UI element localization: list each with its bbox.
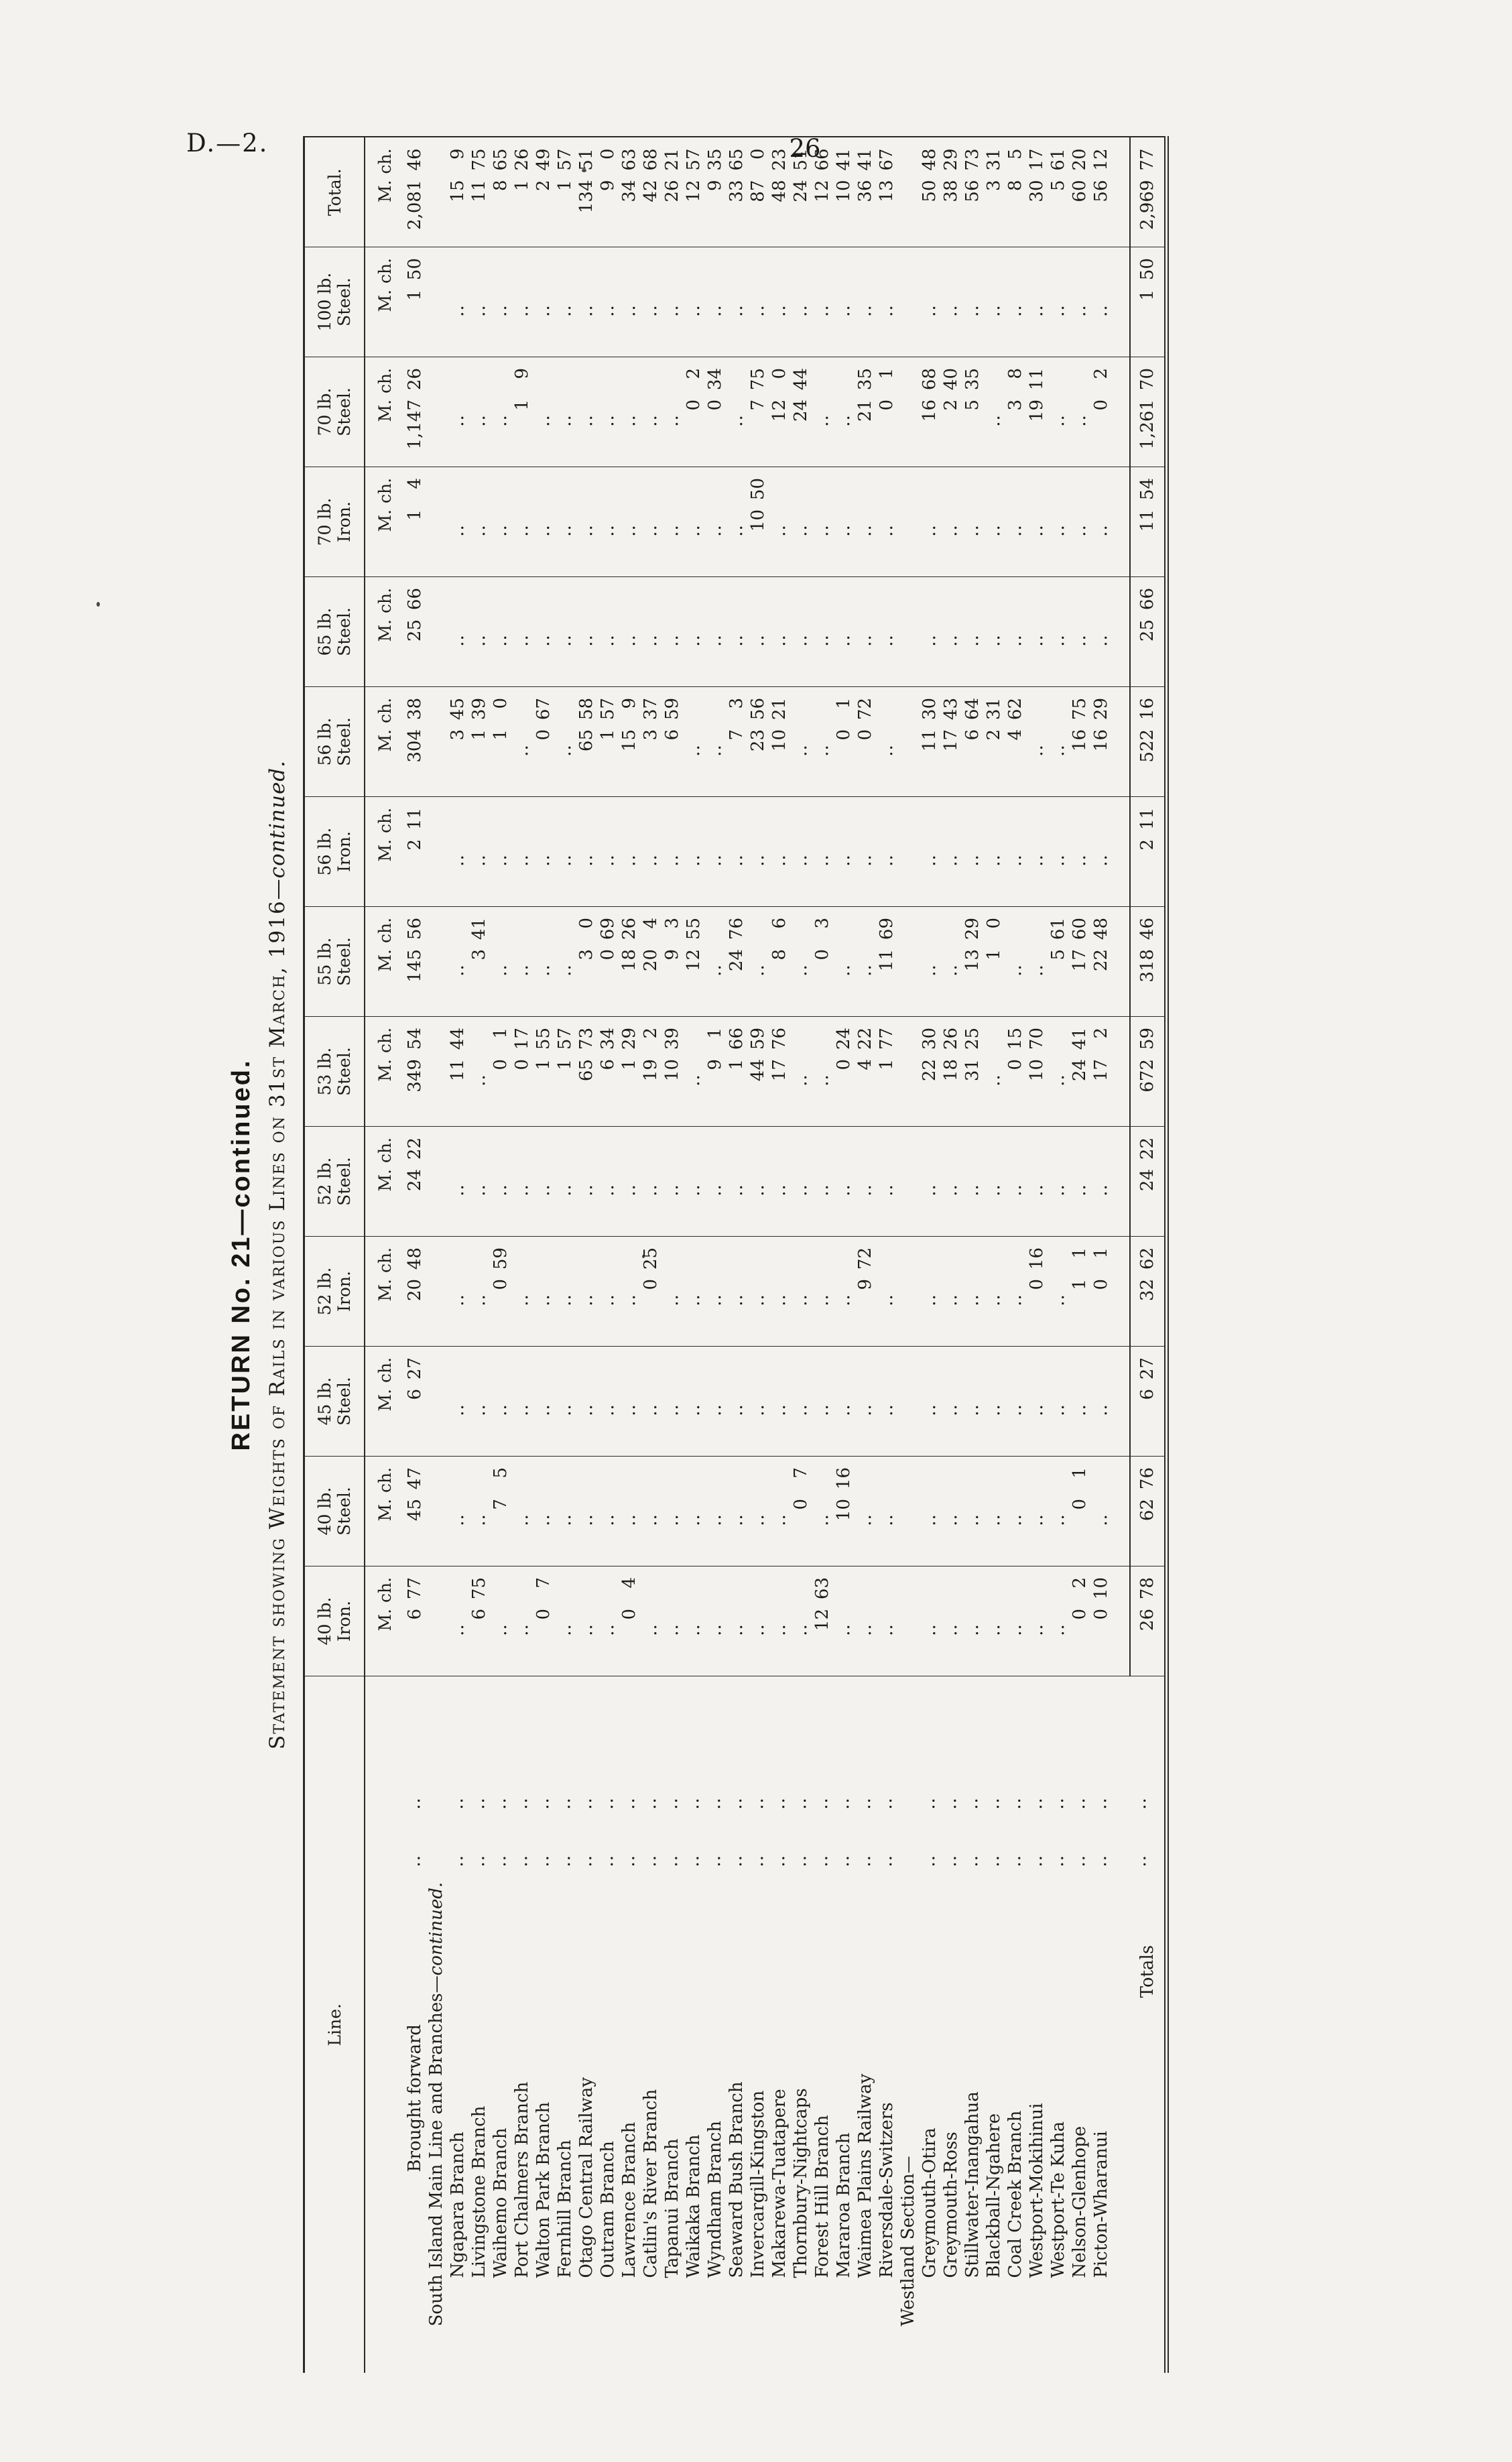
- empty-cell: ..: [490, 907, 511, 1017]
- table-row: Forest Hill Branch.. ..1263..........03.…: [812, 137, 833, 2374]
- value-cell: 4268: [640, 137, 661, 247]
- value-cell: 1776: [769, 1017, 790, 1127]
- empty-cell: ..: [1048, 467, 1069, 577]
- line-name-cell: Fernhill Branch.. ..: [554, 1676, 576, 2374]
- value-cell: 1,26170: [1130, 357, 1167, 467]
- empty-cell: ..: [790, 467, 812, 577]
- blank-cell: [1112, 687, 1130, 797]
- empty-cell: ..: [490, 357, 511, 467]
- empty-cell: ..: [1026, 1127, 1048, 1237]
- value-cell: 2248: [1090, 907, 1112, 1017]
- empty-cell: ..: [704, 1127, 726, 1237]
- line-name-cell: Westport-Te Kuha.. ..: [1048, 1676, 1069, 2374]
- empty-cell: ..: [511, 1237, 533, 1347]
- empty-cell: ..: [1026, 687, 1048, 797]
- blank-cell: [426, 1127, 447, 1237]
- value-cell: 1130: [919, 687, 940, 797]
- empty-cell: ..: [661, 797, 683, 907]
- line-name-cell: Wyndham Branch.. ..: [704, 1676, 726, 2374]
- empty-cell: ..: [940, 1237, 962, 1347]
- empty-cell: ..: [940, 1347, 962, 1457]
- value-cell: 120: [769, 357, 790, 467]
- empty-cell: ..: [554, 797, 576, 907]
- blank-cell: [426, 1457, 447, 1566]
- empty-cell: ..: [790, 907, 812, 1017]
- table-row: Makarewa-Tuatapere.. ............177686.…: [769, 137, 790, 2374]
- empty-cell: ..: [597, 357, 619, 467]
- value-cell: 010: [1090, 1566, 1112, 1676]
- header-labels-row: Line. 40 lb.Iron.40 lb.Steel.45 lb.Steel…: [304, 137, 365, 2374]
- empty-cell: ..: [597, 1566, 619, 1676]
- empty-cell: ..: [683, 687, 704, 797]
- line-name-cell: Walton Park Branch.. ..: [533, 1676, 554, 2374]
- empty-cell: ..: [511, 1127, 533, 1237]
- empty-cell: ..: [983, 1017, 1005, 1127]
- value-cell: 2230: [919, 1017, 940, 1127]
- blank-cell: [897, 1237, 919, 1347]
- column-units-header: M.ch.: [365, 467, 404, 577]
- value-cell: 139: [468, 687, 490, 797]
- line-name-cell: Catlin's River Branch.. ..: [640, 1676, 661, 2374]
- column-units-header: M.ch.: [365, 1566, 404, 1676]
- value-cell: 677: [404, 1566, 426, 1676]
- blank-cell: [426, 467, 447, 577]
- value-cell: 2,08146: [404, 137, 426, 247]
- value-cell: 1263: [812, 1566, 833, 1676]
- table-row: Westland Section—: [897, 137, 919, 2374]
- blank-cell: [897, 797, 919, 907]
- value-cell: 02: [683, 357, 704, 467]
- empty-cell: ..: [940, 1127, 962, 1237]
- return-title: RETURN No. 21—continued.: [227, 1058, 256, 1451]
- empty-cell: ..: [747, 1566, 769, 1676]
- blank-cell: [897, 907, 919, 1017]
- empty-cell: ..: [683, 1127, 704, 1237]
- empty-cell: ..: [490, 577, 511, 687]
- blank-cell: [897, 247, 919, 357]
- column-header: 53 lb.Steel.: [304, 1017, 365, 1127]
- value-cell: 5612: [1090, 137, 1112, 247]
- empty-cell: ..: [747, 577, 769, 687]
- empty-cell: ..: [1069, 247, 1090, 357]
- empty-cell: ..: [812, 1017, 833, 1127]
- empty-cell: ..: [468, 1237, 490, 1347]
- empty-cell: ..: [533, 1127, 554, 1237]
- value-cell: 01: [876, 357, 897, 467]
- value-cell: 231: [983, 687, 1005, 797]
- empty-cell: ..: [704, 907, 726, 1017]
- empty-cell: ..: [597, 577, 619, 687]
- value-cell: 91: [704, 1017, 726, 1127]
- empty-cell: ..: [597, 467, 619, 577]
- empty-cell: ..: [983, 357, 1005, 467]
- empty-cell: ..: [468, 1457, 490, 1566]
- empty-cell: ..: [704, 467, 726, 577]
- empty-cell: ..: [726, 1566, 747, 1676]
- empty-cell: ..: [554, 1237, 576, 1347]
- value-cell: 14: [404, 467, 426, 577]
- empty-cell: ..: [1005, 247, 1026, 357]
- value-cell: 3125: [962, 1017, 983, 1127]
- empty-cell: ..: [619, 1237, 640, 1347]
- blank-cell: [1112, 1347, 1130, 1457]
- empty-cell: ..: [919, 1347, 940, 1457]
- empty-cell: ..: [1069, 1347, 1090, 1457]
- value-cell: 2135: [855, 357, 876, 467]
- value-cell: 1041: [833, 137, 855, 247]
- line-name-cell: South Island Main Line and Branches—cont…: [426, 1676, 447, 2374]
- value-cell: 1154: [1130, 467, 1167, 577]
- empty-cell: ..: [876, 1127, 897, 1237]
- empty-cell: ..: [855, 907, 876, 1017]
- line-name-cell: Picton-Wharanui.. ..: [1090, 1676, 1112, 2374]
- empty-cell: ..: [769, 467, 790, 577]
- value-cell: 341: [468, 907, 490, 1017]
- value-cell: 02: [1090, 357, 1112, 467]
- empty-cell: ..: [490, 247, 511, 357]
- empty-cell: ..: [447, 357, 468, 467]
- empty-cell: ..: [640, 357, 661, 467]
- empty-cell: ..: [769, 577, 790, 687]
- empty-cell: ..: [640, 1566, 661, 1676]
- empty-cell: ..: [812, 577, 833, 687]
- spacer-row: [1112, 137, 1130, 2374]
- table-row: Waihemo Branch.. ....75..059..01....10..…: [490, 137, 511, 2374]
- empty-cell: ..: [769, 797, 790, 907]
- empty-cell: ..: [790, 1566, 812, 1676]
- value-cell: 30: [576, 907, 597, 1017]
- table-row: Waimea Plains Railway.. ........972..422…: [855, 137, 876, 2374]
- value-cell: 865: [490, 137, 511, 247]
- value-cell: 14556: [404, 907, 426, 1017]
- value-cell: 935: [704, 137, 726, 247]
- empty-cell: ..: [833, 1566, 855, 1676]
- empty-cell: ..: [983, 1347, 1005, 1457]
- empty-cell: ..: [640, 1347, 661, 1457]
- value-cell: 03: [812, 907, 833, 1017]
- column-units-header: M.ch.: [365, 1017, 404, 1127]
- value-cell: 2422: [404, 1127, 426, 1237]
- blank-cell: [1112, 577, 1130, 687]
- empty-cell: ..: [468, 1017, 490, 1127]
- empty-cell: ..: [554, 1347, 576, 1457]
- blank-cell: [426, 1017, 447, 1127]
- empty-cell: ..: [983, 797, 1005, 907]
- empty-cell: ..: [940, 577, 962, 687]
- line-name-cell: Lawrence Branch.. ..: [619, 1676, 640, 2374]
- value-cell: 204: [640, 907, 661, 1017]
- empty-cell: ..: [919, 1127, 940, 1237]
- column-units-header: M.ch.: [365, 687, 404, 797]
- blank-cell: [426, 907, 447, 1017]
- empty-cell: ..: [1048, 357, 1069, 467]
- empty-cell: ..: [533, 467, 554, 577]
- value-cell: 31846: [1130, 907, 1167, 1017]
- empty-cell: ..: [1069, 577, 1090, 687]
- value-cell: 067: [533, 687, 554, 797]
- empty-cell: ..: [919, 467, 940, 577]
- empty-cell: ..: [683, 1566, 704, 1676]
- empty-cell: ..: [1048, 1127, 1069, 1237]
- table-row: Livingstone Branch.. ..675..........341.…: [468, 137, 490, 2374]
- value-cell: 069: [597, 907, 619, 1017]
- table-row: Seaward Bush Branch.. ............166247…: [726, 137, 747, 2374]
- value-cell: 561: [1048, 137, 1069, 247]
- line-name-cell: Blackball-Ngahere.. ..: [983, 1676, 1005, 2374]
- empty-cell: ..: [1090, 1127, 1112, 1237]
- empty-cell: ..: [576, 577, 597, 687]
- empty-cell: ..: [576, 1347, 597, 1457]
- value-cell: 02: [1069, 1566, 1090, 1676]
- table-row: Brought forward.. ..67745476272048242234…: [404, 137, 426, 2374]
- value-cell: 6020: [1069, 137, 1090, 247]
- empty-cell: ..: [533, 1237, 554, 1347]
- empty-cell: ..: [919, 797, 940, 907]
- empty-cell: ..: [704, 797, 726, 907]
- value-cell: 2356: [747, 687, 769, 797]
- table-row: Fernhill Branch.. ............157.......…: [554, 137, 576, 2374]
- empty-cell: ..: [919, 1566, 940, 1676]
- empty-cell: ..: [468, 1127, 490, 1237]
- empty-cell: ..: [490, 1566, 511, 1676]
- value-cell: 129: [619, 1017, 640, 1127]
- value-cell: 4823: [769, 137, 790, 247]
- value-cell: 159: [447, 137, 468, 247]
- empty-cell: ..: [447, 1457, 468, 1566]
- empty-cell: ..: [661, 1127, 683, 1237]
- empty-cell: ..: [940, 247, 962, 357]
- value-cell: 1760: [1069, 907, 1090, 1017]
- empty-cell: ..: [812, 357, 833, 467]
- empty-cell: ..: [833, 357, 855, 467]
- empty-cell: ..: [640, 577, 661, 687]
- line-name-cell: Waimea Plains Railway.. ..: [855, 1676, 876, 2374]
- value-cell: 07: [790, 1457, 812, 1566]
- column-header: 70 lb.Steel.: [304, 357, 365, 467]
- value-cell: 211: [404, 797, 426, 907]
- value-cell: 73: [726, 687, 747, 797]
- value-cell: 3829: [940, 137, 962, 247]
- empty-cell: ..: [833, 467, 855, 577]
- empty-cell: ..: [490, 467, 511, 577]
- line-name-cell: Coal Creek Branch.. ..: [1005, 1676, 1026, 2374]
- empty-cell: ..: [1090, 797, 1112, 907]
- empty-cell: ..: [576, 1237, 597, 1347]
- line-name-cell: Greymouth-Ross.. ..: [940, 1676, 962, 2374]
- empty-cell: ..: [447, 247, 468, 357]
- empty-cell: ..: [619, 247, 640, 357]
- empty-cell: ..: [447, 797, 468, 907]
- value-cell: 2621: [661, 137, 683, 247]
- line-name-cell: Outram Branch.. ..: [597, 1676, 619, 2374]
- table-row: Otago Central Railway.. ............6573…: [576, 137, 597, 2374]
- empty-cell: ..: [855, 1347, 876, 1457]
- line-name-cell: Invercargill-Kingston.. ..: [747, 1676, 769, 2374]
- empty-cell: ..: [962, 1237, 983, 1347]
- empty-cell: ..: [704, 247, 726, 357]
- empty-cell: ..: [490, 1347, 511, 1457]
- empty-cell: ..: [683, 1457, 704, 1566]
- empty-cell: ..: [619, 357, 640, 467]
- value-cell: 177: [876, 1017, 897, 1127]
- empty-cell: ..: [533, 247, 554, 357]
- table-row: Outram Branch.. ............634069..157.…: [597, 137, 619, 2374]
- blank-cell: [426, 1347, 447, 1457]
- empty-cell: ..: [661, 577, 683, 687]
- table-row: Walton Park Branch.. ..07........155....…: [533, 137, 554, 2374]
- value-cell: 01: [1090, 1237, 1112, 1347]
- value-cell: 331: [983, 137, 1005, 247]
- empty-cell: ..: [468, 797, 490, 907]
- empty-cell: ..: [533, 1347, 554, 1457]
- value-cell: 972: [855, 1237, 876, 1347]
- empty-cell: ..: [576, 797, 597, 907]
- empty-cell: ..: [511, 1566, 533, 1676]
- column-units-header: M.ch.: [365, 1457, 404, 1566]
- empty-cell: ..: [726, 1457, 747, 1566]
- empty-cell: ..: [769, 1457, 790, 1566]
- empty-cell: ..: [983, 467, 1005, 577]
- empty-cell: ..: [833, 1237, 855, 1347]
- empty-cell: ..: [704, 577, 726, 687]
- value-cell: 664: [962, 687, 983, 797]
- line-name-cell: Waikaka Branch.. ..: [683, 1676, 704, 2374]
- empty-cell: ..: [1090, 1347, 1112, 1457]
- empty-cell: ..: [769, 1566, 790, 1676]
- empty-cell: ..: [726, 1237, 747, 1347]
- empty-cell: ..: [619, 1457, 640, 1566]
- empty-cell: ..: [812, 1457, 833, 1566]
- value-cell: 1175: [468, 137, 490, 247]
- empty-cell: ..: [597, 797, 619, 907]
- value-cell: 535: [962, 357, 983, 467]
- empty-cell: ..: [554, 467, 576, 577]
- table-row: Greymouth-Otira.. ............2230....11…: [919, 137, 940, 2374]
- column-units-header: M.ch.: [365, 907, 404, 1017]
- empty-cell: ..: [447, 1237, 468, 1347]
- value-cell: 75: [490, 1457, 511, 1566]
- blank-cell: [1112, 247, 1130, 357]
- value-cell: 2451: [790, 137, 812, 247]
- empty-cell: ..: [1048, 797, 1069, 907]
- empty-cell: ..: [1090, 467, 1112, 577]
- value-cell: 659: [661, 687, 683, 797]
- value-cell: 2422: [1130, 1127, 1167, 1237]
- column-units-header: M.ch.: [365, 1347, 404, 1457]
- empty-cell: ..: [919, 1457, 940, 1566]
- value-cell: 627: [1130, 1347, 1167, 1457]
- column-units-header: M.ch.: [365, 1127, 404, 1237]
- table-row: Ngapara Branch.. ............1144....345…: [447, 137, 468, 2374]
- table-row: Port Chalmers Branch.. ............017..…: [511, 137, 533, 2374]
- empty-cell: ..: [769, 1237, 790, 1347]
- value-cell: 1826: [619, 907, 640, 1017]
- empty-cell: ..: [447, 1347, 468, 1457]
- value-cell: 13451: [576, 137, 597, 247]
- value-cell: 240: [940, 357, 962, 467]
- blank-cell: [426, 1566, 447, 1676]
- table-row: Lawrence Branch.. ..04........1291826..1…: [619, 137, 640, 2374]
- empty-cell: ..: [812, 1237, 833, 1347]
- value-cell: 2566: [1130, 577, 1167, 687]
- value-cell: 627: [404, 1347, 426, 1457]
- line-column-units-blank: [365, 1676, 404, 2374]
- empty-cell: ..: [554, 577, 576, 687]
- line-name-cell: Westland Section—: [897, 1676, 919, 2374]
- value-cell: 1743: [940, 687, 962, 797]
- value-cell: 2566: [404, 577, 426, 687]
- value-cell: 1016: [833, 1457, 855, 1566]
- empty-cell: ..: [812, 1127, 833, 1237]
- line-name-cell: Makarewa-Tuatapere.. ..: [769, 1676, 790, 2374]
- blank-cell: [1112, 1457, 1130, 1566]
- empty-cell: ..: [983, 1127, 1005, 1237]
- column-header: 56 lb.Steel.: [304, 687, 365, 797]
- value-cell: 1144: [447, 1017, 468, 1127]
- empty-cell: ..: [1026, 467, 1048, 577]
- value-cell: 6276: [1130, 1457, 1167, 1566]
- blank-cell: [897, 1347, 919, 1457]
- empty-cell: ..: [533, 357, 554, 467]
- line-name-cell: Waihemo Branch.. ..: [490, 1676, 511, 2374]
- value-cell: 024: [833, 1017, 855, 1127]
- column-header: 40 lb.Steel.: [304, 1457, 365, 1566]
- empty-cell: ..: [747, 797, 769, 907]
- empty-cell: ..: [683, 1017, 704, 1127]
- value-cell: 52216: [1130, 687, 1167, 797]
- blank-cell: [1112, 797, 1130, 907]
- value-cell: 1911: [1026, 357, 1048, 467]
- value-cell: 4459: [747, 1017, 769, 1127]
- blank-cell: [897, 1127, 919, 1237]
- empty-cell: ..: [554, 1457, 576, 1566]
- empty-cell: ..: [468, 1347, 490, 1457]
- empty-cell: ..: [533, 907, 554, 1017]
- value-cell: 3365: [726, 137, 747, 247]
- line-name-cell: Otago Central Railway.. ..: [576, 1676, 597, 2374]
- value-cell: 10: [983, 907, 1005, 1017]
- empty-cell: ..: [1005, 1237, 1026, 1347]
- table-row: Nelson-Glenhope.. ..0201..11..24411760..…: [1069, 137, 1090, 2374]
- value-cell: 675: [468, 1566, 490, 1676]
- value-cell: 015: [1005, 1017, 1026, 1127]
- empty-cell: ..: [1069, 357, 1090, 467]
- scanned-page: D.—2. 26 RETURN No. 21—continued. Statem…: [0, 0, 1512, 2462]
- column-header: 55 lb.Steel.: [304, 907, 365, 1017]
- table-row: Totals.. ..26786276627326224226725931846…: [1130, 137, 1167, 2374]
- value-cell: 034: [704, 357, 726, 467]
- empty-cell: ..: [1005, 797, 1026, 907]
- empty-cell: ..: [962, 467, 983, 577]
- empty-cell: ..: [747, 1127, 769, 1237]
- empty-cell: ..: [447, 1127, 468, 1237]
- empty-cell: ..: [1048, 577, 1069, 687]
- empty-cell: ..: [468, 577, 490, 687]
- empty-cell: ..: [769, 247, 790, 357]
- empty-cell: ..: [661, 1347, 683, 1457]
- empty-cell: ..: [1026, 577, 1048, 687]
- empty-cell: ..: [855, 1457, 876, 1566]
- value-cell: 1,14726: [404, 357, 426, 467]
- empty-cell: ..: [511, 467, 533, 577]
- empty-cell: ..: [790, 247, 812, 357]
- empty-cell: ..: [962, 1457, 983, 1566]
- empty-cell: ..: [769, 1127, 790, 1237]
- value-cell: 38: [1005, 357, 1026, 467]
- empty-cell: ..: [812, 687, 833, 797]
- blank-cell: [1112, 1676, 1130, 2374]
- empty-cell: ..: [876, 577, 897, 687]
